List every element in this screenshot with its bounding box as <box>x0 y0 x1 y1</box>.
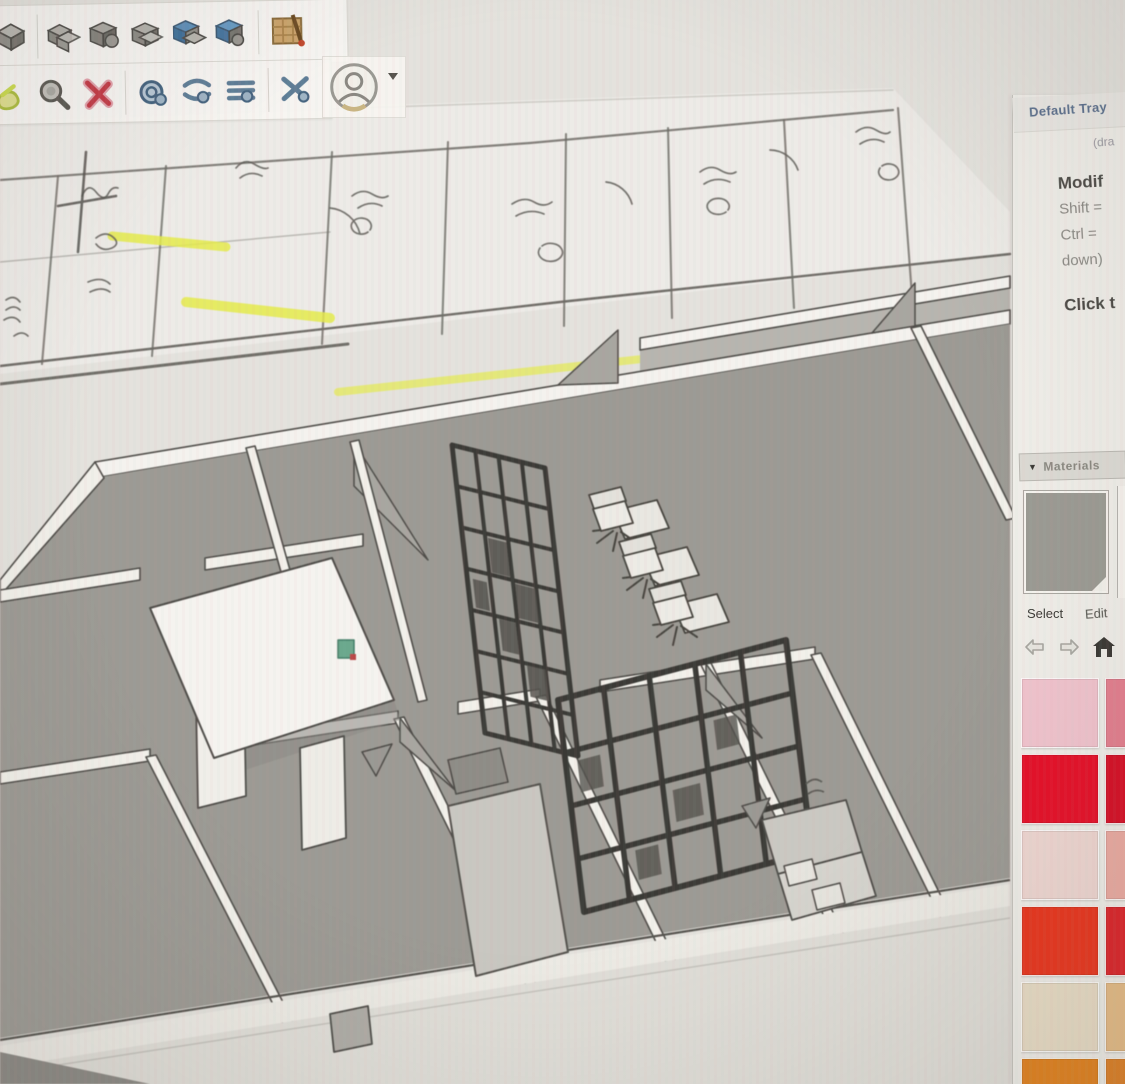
instructor-cta: Click t <box>1064 292 1125 316</box>
forward-arrow-button[interactable] <box>1057 636 1081 658</box>
color-swatch[interactable] <box>1021 830 1099 900</box>
subtract-icon <box>131 17 166 52</box>
instructor-text-fragment: (dra <box>1093 134 1115 149</box>
collapse-caret-icon: ▼ <box>1028 462 1038 472</box>
cube-tool-icon <box>0 20 28 55</box>
intersect-icon <box>215 15 250 50</box>
color-swatch[interactable] <box>1021 678 1099 748</box>
toolbar-separator <box>37 15 39 59</box>
color-swatch[interactable] <box>1105 678 1125 748</box>
orbit-tool-icon <box>135 74 172 111</box>
delete-tool-button[interactable] <box>78 73 119 114</box>
account-area <box>322 56 406 118</box>
paint-material-icon <box>268 11 309 52</box>
toolbar-separator <box>268 68 270 112</box>
color-swatch[interactable] <box>1021 982 1099 1052</box>
tab-edit[interactable]: Edit <box>1085 605 1108 622</box>
home-icon <box>1091 635 1117 659</box>
union-button[interactable] <box>87 16 126 55</box>
tab-select[interactable]: Select <box>1027 606 1063 621</box>
green-object <box>338 640 356 660</box>
instructor-line: Ctrl = <box>1060 223 1125 244</box>
zoom-extents-tool-button[interactable] <box>221 70 262 111</box>
cube-tool-button[interactable] <box>0 18 30 57</box>
union-icon <box>89 18 124 53</box>
materials-preview[interactable] <box>1023 490 1109 594</box>
back-arrow-button[interactable] <box>1023 636 1047 658</box>
trim-icon <box>173 16 208 51</box>
screen-photo: Default Tray (dra Modif Shift = Ctrl = d… <box>0 0 1125 1084</box>
delete-tool-icon <box>80 75 117 112</box>
eraser-tool-icon <box>0 78 28 113</box>
instructor-line: Shift = <box>1059 197 1125 218</box>
instructor-line: down) <box>1061 249 1125 270</box>
model-viewport[interactable] <box>0 0 1125 1084</box>
outer-shell-button[interactable] <box>45 17 84 56</box>
color-swatch[interactable] <box>1021 754 1099 824</box>
materials-tabs: Select Edit <box>1027 606 1108 621</box>
account-caret-button[interactable] <box>384 69 402 83</box>
toolbar-separator <box>125 71 127 115</box>
account-icon <box>328 61 380 113</box>
back-arrow-icon <box>1023 636 1047 658</box>
color-swatch[interactable] <box>1105 1058 1125 1084</box>
toolbar-separator <box>258 10 260 54</box>
materials-preview-edge <box>1117 486 1125 598</box>
intersect-button[interactable] <box>213 13 252 52</box>
zoom-extents-tool-icon <box>223 72 260 109</box>
color-swatch[interactable] <box>1021 1058 1099 1084</box>
camera-tools-toolbar <box>0 59 333 126</box>
outer-shell-icon <box>47 19 82 54</box>
previous-view-tool-icon <box>278 71 315 108</box>
color-swatch[interactable] <box>1105 754 1125 824</box>
zoom-tool-icon <box>36 76 73 113</box>
color-swatch-grid <box>1021 678 1125 1084</box>
trim-button[interactable] <box>171 14 210 53</box>
materials-nav <box>1023 635 1117 659</box>
account-button[interactable] <box>326 59 382 115</box>
subtract-button[interactable] <box>129 15 168 54</box>
color-swatch[interactable] <box>1105 830 1125 900</box>
paint-material-button[interactable] <box>266 9 311 54</box>
materials-header-label: Materials <box>1043 458 1100 473</box>
color-swatch[interactable] <box>1021 906 1099 976</box>
eraser-tool-button[interactable] <box>0 76 30 115</box>
pan-tool-icon <box>179 73 216 110</box>
account-caret-icon <box>386 71 400 81</box>
instructor-heading: Modif <box>1057 170 1125 194</box>
orbit-tool-button[interactable] <box>133 72 174 113</box>
color-swatch[interactable] <box>1105 982 1125 1052</box>
in-model-home-button[interactable] <box>1091 635 1117 659</box>
forward-arrow-icon <box>1057 636 1081 658</box>
pan-tool-button[interactable] <box>177 71 218 112</box>
zoom-tool-button[interactable] <box>34 74 75 115</box>
materials-section-header[interactable]: ▼ Materials <box>1019 451 1125 482</box>
default-tray-panel: Default Tray (dra Modif Shift = Ctrl = d… <box>1012 95 1125 1084</box>
color-swatch[interactable] <box>1105 906 1125 976</box>
previous-view-tool-button[interactable] <box>276 69 317 110</box>
instructor-panel: Modif Shift = Ctrl = down) Click t <box>1057 170 1125 315</box>
